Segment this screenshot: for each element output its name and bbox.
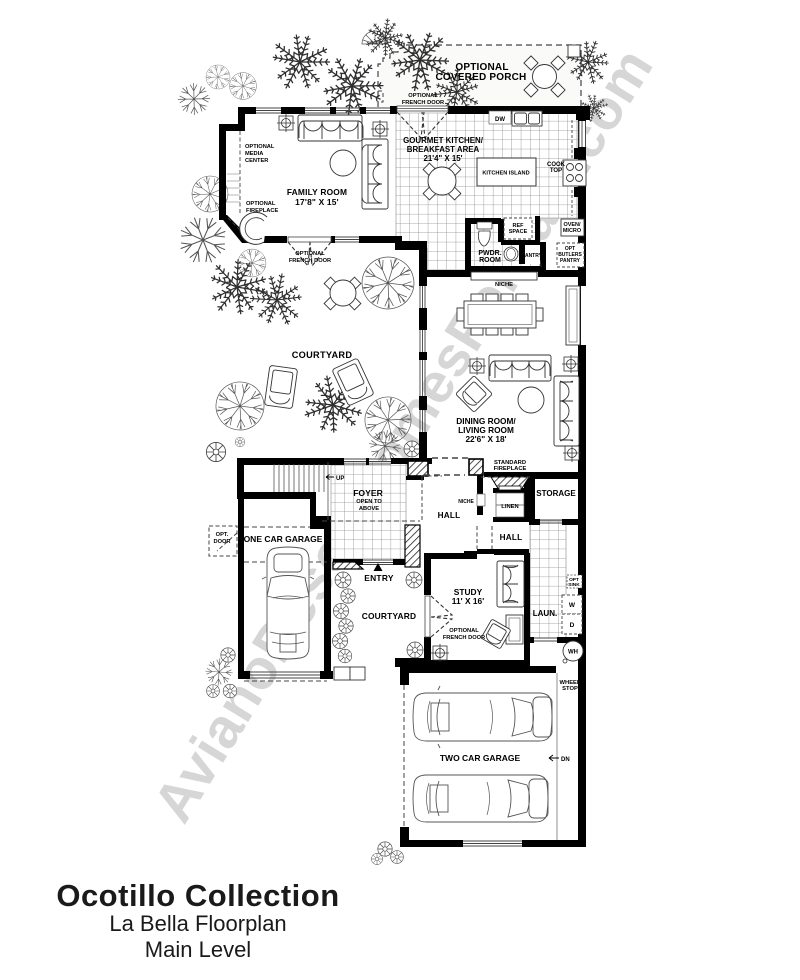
svg-text:TWO CAR GARAGE: TWO CAR GARAGE <box>440 753 521 763</box>
svg-text:TOP: TOP <box>550 168 562 174</box>
svg-text:ROOM: ROOM <box>479 257 501 264</box>
svg-text:MEDIA: MEDIA <box>245 151 263 157</box>
svg-text:21'4" X 15': 21'4" X 15' <box>423 154 462 163</box>
svg-text:DOOR: DOOR <box>213 539 230 545</box>
svg-text:OPEN TO: OPEN TO <box>356 499 382 505</box>
svg-text:OPT.: OPT. <box>216 532 229 538</box>
svg-text:PWDR.: PWDR. <box>478 250 501 257</box>
svg-text:WH: WH <box>568 650 578 656</box>
svg-text:DW: DW <box>495 117 505 123</box>
svg-text:OPTIONAL: OPTIONAL <box>246 201 276 207</box>
svg-text:BREAKFAST AREA: BREAKFAST AREA <box>407 145 480 154</box>
svg-text:NICHE: NICHE <box>458 499 474 505</box>
svg-text:PANTRY: PANTRY <box>560 258 581 264</box>
svg-text:ENTRY: ENTRY <box>364 573 394 583</box>
svg-text:COVERED PORCH: COVERED PORCH <box>436 72 527 83</box>
svg-text:OPTIONAL: OPTIONAL <box>408 93 438 99</box>
svg-text:OPTIONAL: OPTIONAL <box>295 251 325 257</box>
svg-text:FOYER: FOYER <box>353 488 383 498</box>
svg-text:ONE CAR GARAGE: ONE CAR GARAGE <box>244 534 323 544</box>
svg-text:COURTYARD: COURTYARD <box>362 611 417 621</box>
svg-text:MICRO: MICRO <box>563 228 582 234</box>
svg-text:11' X 16': 11' X 16' <box>452 596 484 606</box>
svg-text:DN: DN <box>561 757 570 763</box>
svg-text:FAMILY ROOM: FAMILY ROOM <box>287 187 347 197</box>
svg-text:17'8" X 15': 17'8" X 15' <box>295 197 339 207</box>
svg-text:Ocotillo Collection: Ocotillo Collection <box>56 878 339 913</box>
svg-text:HALL: HALL <box>438 511 461 520</box>
svg-text:UP: UP <box>336 476 344 482</box>
svg-text:HALL: HALL <box>500 533 523 542</box>
svg-text:GOURMET KITCHEN/: GOURMET KITCHEN/ <box>403 136 484 145</box>
svg-text:W: W <box>569 602 576 609</box>
svg-text:OPTIONAL: OPTIONAL <box>449 628 479 634</box>
svg-text:STOP: STOP <box>562 686 578 692</box>
svg-text:FIREPLACE: FIREPLACE <box>246 208 278 214</box>
svg-text:KITCHEN ISLAND: KITCHEN ISLAND <box>482 171 529 177</box>
svg-text:FRENCH DOOR: FRENCH DOOR <box>289 258 331 264</box>
svg-text:STORAGE: STORAGE <box>536 489 576 498</box>
svg-text:COURTYARD: COURTYARD <box>292 350 353 360</box>
svg-text:SPACE: SPACE <box>509 229 528 235</box>
svg-text:OPTIONAL: OPTIONAL <box>245 144 275 150</box>
svg-text:22'6" X 18': 22'6" X 18' <box>465 434 506 444</box>
svg-text:La Bella Floorplan: La Bella Floorplan <box>109 911 286 936</box>
svg-text:FIREPLACE: FIREPLACE <box>494 466 527 472</box>
svg-text:FRENCH DOOR: FRENCH DOOR <box>443 635 485 641</box>
svg-text:CENTER: CENTER <box>245 158 268 164</box>
svg-text:SINK: SINK <box>568 582 580 588</box>
svg-text:FRENCH DOOR: FRENCH DOOR <box>402 100 444 106</box>
svg-text:NICHE: NICHE <box>495 282 513 288</box>
svg-text:D: D <box>570 622 575 629</box>
svg-text:LINEN: LINEN <box>501 504 518 510</box>
svg-text:LAUN.: LAUN. <box>533 609 557 618</box>
svg-text:PANTRY: PANTRY <box>522 253 543 259</box>
svg-text:Main Level: Main Level <box>145 937 251 962</box>
svg-text:ABOVE: ABOVE <box>359 506 379 512</box>
